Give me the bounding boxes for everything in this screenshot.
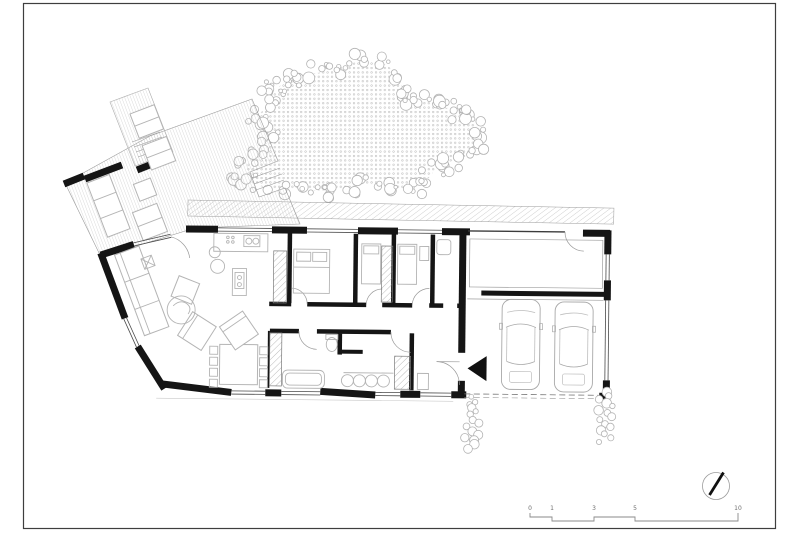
floor-plan-sheet: 0 1 3 5 10 — [0, 0, 800, 535]
plant — [211, 259, 225, 273]
scale-label-10: 10 — [734, 505, 742, 512]
laundry-closet — [269, 333, 282, 386]
entrance-marker-icon — [467, 356, 486, 381]
scale-label-0: 0 — [528, 505, 532, 512]
north-needle-icon — [710, 473, 724, 496]
paving-edge — [156, 398, 453, 401]
storage-room — [469, 239, 602, 288]
north-arrow-icon — [703, 473, 730, 500]
scale-label-1: 1 — [550, 505, 554, 512]
scale-label-5: 5 — [633, 505, 637, 512]
bathroom-fixtures — [269, 333, 394, 389]
floor-plan-drawing: 0 1 3 5 10 — [0, 0, 800, 535]
plant — [209, 247, 220, 258]
entry-wardrobe — [394, 356, 410, 389]
trees-vegetation — [227, 48, 489, 202]
scale-bar: 0 1 3 5 10 — [528, 505, 742, 521]
kitchen-tall-units — [273, 251, 287, 303]
garage — [464, 299, 603, 399]
vestibule-fixture — [437, 240, 451, 255]
scale-label-3: 3 — [592, 505, 596, 512]
car-1 — [499, 299, 543, 389]
car-2 — [552, 302, 596, 392]
entry-door-opening — [453, 353, 469, 381]
wardrobe — [381, 246, 393, 302]
house — [99, 225, 612, 403]
shrubs — [461, 387, 616, 453]
garage-door — [464, 394, 598, 395]
dining-set — [209, 344, 267, 388]
living-room-furniture — [114, 246, 260, 351]
carport-front-wall — [468, 231, 565, 232]
